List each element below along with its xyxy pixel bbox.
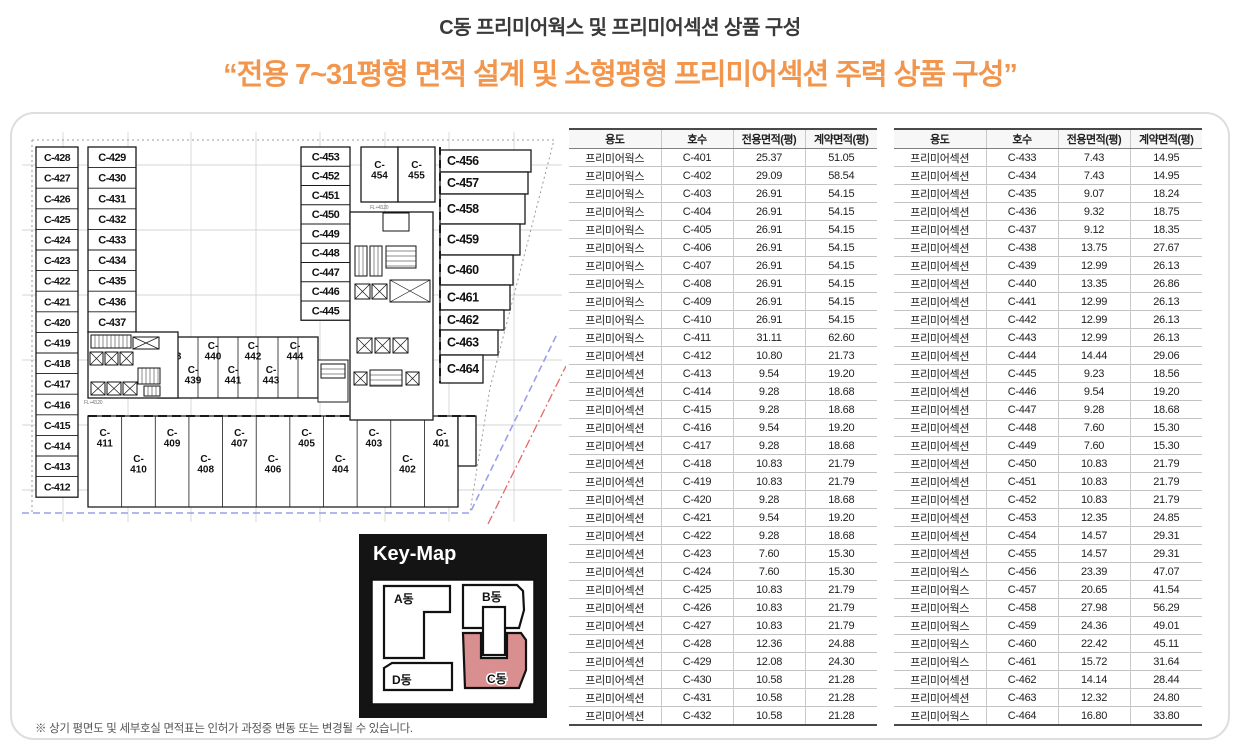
table-cell: C-423: [661, 545, 733, 563]
table-row: 프리미어섹션C-42610.8321.79: [569, 599, 877, 617]
table-cell: C-420: [661, 491, 733, 509]
table-cell: 프리미어섹션: [569, 527, 661, 545]
key-map-title: Key-Map: [359, 534, 547, 566]
table-cell: 프리미어섹션: [894, 689, 986, 707]
unit-label: C-464: [447, 362, 479, 376]
table-cell: 21.79: [805, 617, 877, 635]
table-cell: 54.15: [805, 257, 877, 275]
table-cell: 10.83: [733, 599, 805, 617]
unit-label: C-414: [44, 441, 71, 453]
table-cell: 10.83: [1058, 455, 1130, 473]
table-cell: 21.79: [805, 473, 877, 491]
table-row: 프리미어섹션C-43912.9926.13: [894, 257, 1202, 275]
table-cell: 10.58: [733, 707, 805, 726]
table-row: 프리미어섹션C-44212.9926.13: [894, 311, 1202, 329]
table-cell: 프리미어웍스: [569, 293, 661, 311]
table-cell: 9.28: [733, 401, 805, 419]
table-cell: 7.60: [1058, 437, 1130, 455]
table-cell: C-457: [986, 581, 1058, 599]
unit-label: C-456: [447, 154, 479, 168]
table-cell: 프리미어웍스: [569, 185, 661, 203]
table-cell: C-421: [661, 509, 733, 527]
unit-label: C-446: [312, 286, 340, 298]
table-cell: 프리미어섹션: [569, 437, 661, 455]
table-cell: 14.95: [1130, 167, 1202, 185]
table-cell: 프리미어섹션: [569, 455, 661, 473]
table-header-row: 용도호수전용면적(평)계약면적(평): [894, 129, 1202, 149]
level-annotation: FL +43.20: [84, 400, 103, 406]
table-cell: 프리미어웍스: [894, 707, 986, 726]
table-cell: C-455: [986, 545, 1058, 563]
table-row: 프리미어섹션C-4229.2818.68: [569, 527, 877, 545]
table-cell: C-427: [661, 617, 733, 635]
table-cell: 프리미어웍스: [894, 653, 986, 671]
table-cell: 프리미어섹션: [894, 365, 986, 383]
table-cell: 프리미어섹션: [894, 329, 986, 347]
unit-label: C-420: [44, 317, 71, 329]
column-header: 호수: [986, 129, 1058, 149]
table-cell: 7.43: [1058, 167, 1130, 185]
table-cell: C-409: [661, 293, 733, 311]
unit-label: C-428: [44, 152, 71, 164]
table-cell: 51.05: [805, 149, 877, 167]
table-cell: 27.67: [1130, 239, 1202, 257]
table-cell: 13.75: [1058, 239, 1130, 257]
table-cell: 프리미어섹션: [569, 689, 661, 707]
table-cell: 12.99: [1058, 293, 1130, 311]
building-d-label: D동: [392, 673, 412, 687]
table-cell: C-424: [661, 563, 733, 581]
building-c-label: C동: [487, 672, 507, 686]
table-row: 프리미어웍스C-45623.3947.07: [894, 563, 1202, 581]
table-cell: 24.85: [1130, 509, 1202, 527]
table-cell: C-445: [986, 365, 1058, 383]
table-cell: 프리미어섹션: [894, 185, 986, 203]
table-cell: 19.20: [805, 509, 877, 527]
table-cell: C-448: [986, 419, 1058, 437]
level-annotation: FL +43.20: [370, 205, 389, 211]
table-cell: C-403: [661, 185, 733, 203]
table-cell: 26.91: [733, 257, 805, 275]
unit-label: C-421: [44, 296, 71, 308]
table-cell: C-437: [986, 221, 1058, 239]
table-cell: 26.13: [1130, 257, 1202, 275]
table-cell: 프리미어섹션: [894, 257, 986, 275]
table-cell: C-416: [661, 419, 733, 437]
table-row: 프리미어섹션C-4369.3218.75: [894, 203, 1202, 221]
table-cell: 24.36: [1058, 617, 1130, 635]
table-cell: 49.01: [1130, 617, 1202, 635]
table-row: 프리미어섹션C-45414.5729.31: [894, 527, 1202, 545]
unit-label: C-416: [44, 399, 71, 411]
table-cell: 프리미어섹션: [894, 167, 986, 185]
table-cell: 21.79: [805, 581, 877, 599]
table-cell: 7.60: [733, 545, 805, 563]
table-cell: 9.28: [733, 527, 805, 545]
table-cell: 프리미어섹션: [894, 473, 986, 491]
table-cell: 14.57: [1058, 527, 1130, 545]
unit-table-right: 용도호수전용면적(평)계약면적(평)프리미어섹션C-4337.4314.95프리…: [894, 128, 1202, 726]
building-b-label: B동: [482, 590, 502, 604]
table-row: 프리미어섹션C-4337.4314.95: [894, 149, 1202, 167]
table-cell: 프리미어섹션: [569, 419, 661, 437]
table-row: 프리미어섹션C-45210.8321.79: [894, 491, 1202, 509]
table-cell: 프리미어웍스: [569, 221, 661, 239]
column-header: 전용면적(평): [733, 129, 805, 149]
table-cell: 62.60: [805, 329, 877, 347]
table-cell: 프리미어섹션: [569, 653, 661, 671]
table-cell: 10.83: [733, 455, 805, 473]
table-cell: 프리미어섹션: [569, 563, 661, 581]
table-cell: C-450: [986, 455, 1058, 473]
table-row: 프리미어웍스C-40526.9154.15: [569, 221, 877, 239]
table-cell: 프리미어웍스: [894, 617, 986, 635]
table-row: 프리미어섹션C-43813.7527.67: [894, 239, 1202, 257]
table-cell: 10.83: [733, 617, 805, 635]
table-cell: 54.15: [805, 311, 877, 329]
table-cell: 23.39: [1058, 563, 1130, 581]
key-map-diagram: A동 B동 D동 C동: [370, 578, 536, 706]
table-cell: 27.98: [1058, 599, 1130, 617]
table-cell: 14.95: [1130, 149, 1202, 167]
column-header: 계약면적(평): [1130, 129, 1202, 149]
table-cell: 프리미어섹션: [569, 509, 661, 527]
unit-label: C-418: [44, 358, 71, 370]
table-cell: 15.30: [1130, 419, 1202, 437]
table-cell: C-444: [986, 347, 1058, 365]
table-cell: 26.13: [1130, 329, 1202, 347]
table-cell: 54.15: [805, 221, 877, 239]
table-row: 프리미어섹션C-4479.2818.68: [894, 401, 1202, 419]
table-cell: C-407: [661, 257, 733, 275]
table-cell: 19.20: [1130, 383, 1202, 401]
table-cell: 10.58: [733, 689, 805, 707]
table-cell: C-414: [661, 383, 733, 401]
unit-label: C-447: [312, 267, 340, 279]
table-cell: 21.73: [805, 347, 877, 365]
table-cell: 26.91: [733, 203, 805, 221]
table-cell: 29.06: [1130, 347, 1202, 365]
table-row: 프리미어섹션C-4209.2818.68: [569, 491, 877, 509]
table-cell: 프리미어섹션: [569, 581, 661, 599]
page-subtitle: “전용 7~31평형 면적 설계 및 소형평형 프리미어섹션 주력 상품 구성”: [0, 51, 1240, 93]
table-cell: C-438: [986, 239, 1058, 257]
table-cell: 14.44: [1058, 347, 1130, 365]
unit-label: C-458: [447, 202, 479, 216]
table-row: 프리미어섹션C-46214.1428.44: [894, 671, 1202, 689]
table-row: 프리미어웍스C-40125.3751.05: [569, 149, 877, 167]
table-cell: 21.79: [1130, 455, 1202, 473]
table-cell: 31.64: [1130, 653, 1202, 671]
table-cell: 7.60: [1058, 419, 1130, 437]
unit-label: C-450: [312, 209, 340, 221]
table-cell: 10.83: [1058, 491, 1130, 509]
table-row: 프리미어섹션C-4219.5419.20: [569, 509, 877, 527]
unit-label: C-424: [44, 235, 71, 247]
unit-label: C-435: [98, 276, 126, 288]
table-cell: 12.32: [1058, 689, 1130, 707]
table-row: 프리미어섹션C-4247.6015.30: [569, 563, 877, 581]
table-cell: 9.28: [1058, 401, 1130, 419]
table-cell: 프리미어섹션: [569, 545, 661, 563]
table-cell: 54.15: [805, 185, 877, 203]
table-cell: C-425: [661, 581, 733, 599]
table-cell: 프리미어웍스: [569, 257, 661, 275]
table-row: 프리미어섹션C-44414.4429.06: [894, 347, 1202, 365]
table-cell: 9.32: [1058, 203, 1130, 221]
table-cell: 21.28: [805, 671, 877, 689]
table-cell: 9.23: [1058, 365, 1130, 383]
table-cell: 26.91: [733, 185, 805, 203]
table-cell: 12.36: [733, 635, 805, 653]
table-cell: C-419: [661, 473, 733, 491]
unit-label: C-412: [44, 482, 71, 494]
column-header: 전용면적(평): [1058, 129, 1130, 149]
table-cell: 프리미어섹션: [894, 455, 986, 473]
table-cell: C-447: [986, 401, 1058, 419]
table-cell: 프리미어섹션: [569, 347, 661, 365]
table-cell: 프리미어섹션: [894, 401, 986, 419]
table-cell: C-454: [986, 527, 1058, 545]
table-cell: 54.15: [805, 239, 877, 257]
table-cell: 프리미어섹션: [894, 221, 986, 239]
table-cell: 프리미어섹션: [894, 149, 986, 167]
table-row: 프리미어섹션C-41910.8321.79: [569, 473, 877, 491]
table-row: 프리미어섹션C-42812.3624.88: [569, 635, 877, 653]
table-cell: C-417: [661, 437, 733, 455]
key-map: Key-Map A동 B동 D동 C동: [359, 534, 547, 718]
unit-label: C-445: [312, 305, 340, 317]
table-cell: 9.54: [1058, 383, 1130, 401]
table-cell: 54.15: [805, 203, 877, 221]
table-cell: 프리미어섹션: [569, 635, 661, 653]
table-cell: 9.28: [733, 437, 805, 455]
table-row: 프리미어섹션C-45514.5729.31: [894, 545, 1202, 563]
table-cell: 20.65: [1058, 581, 1130, 599]
column-header: 용도: [569, 129, 661, 149]
table-cell: 26.13: [1130, 311, 1202, 329]
table-cell: C-404: [661, 203, 733, 221]
table-cell: 7.60: [733, 563, 805, 581]
unit-label: C-432: [98, 214, 126, 226]
table-row: 프리미어웍스C-40229.0958.54: [569, 167, 877, 185]
table-cell: 15.30: [805, 545, 877, 563]
table-row: 프리미어섹션C-4169.5419.20: [569, 419, 877, 437]
table-cell: 15.72: [1058, 653, 1130, 671]
table-row: 프리미어섹션C-45312.3524.85: [894, 509, 1202, 527]
unit-label: C-437: [98, 317, 126, 329]
table-cell: C-436: [986, 203, 1058, 221]
table-cell: 12.35: [1058, 509, 1130, 527]
table-row: 프리미어섹션C-45010.8321.79: [894, 455, 1202, 473]
unit-label: C-449: [312, 228, 340, 240]
table-cell: C-459: [986, 617, 1058, 635]
table-row: 프리미어섹션C-44312.9926.13: [894, 329, 1202, 347]
table-cell: 프리미어섹션: [894, 491, 986, 509]
table-cell: 45.11: [1130, 635, 1202, 653]
road-line-red: [488, 366, 566, 524]
table-cell: 9.28: [733, 491, 805, 509]
table-row: 프리미어섹션C-4179.2818.68: [569, 437, 877, 455]
table-row: 프리미어웍스C-40326.9154.15: [569, 185, 877, 203]
table-row: 프리미어웍스C-45924.3649.01: [894, 617, 1202, 635]
table-cell: 프리미어섹션: [894, 419, 986, 437]
table-cell: 29.31: [1130, 527, 1202, 545]
unit-label: C-433: [98, 235, 126, 247]
table-cell: 18.68: [1130, 401, 1202, 419]
table-cell: C-428: [661, 635, 733, 653]
table-cell: 프리미어섹션: [894, 275, 986, 293]
table-cell: C-413: [661, 365, 733, 383]
table-row: 프리미어웍스C-45720.6541.54: [894, 581, 1202, 599]
table-cell: 13.35: [1058, 275, 1130, 293]
table-cell: 28.44: [1130, 671, 1202, 689]
table-cell: 14.14: [1058, 671, 1130, 689]
table-cell: C-408: [661, 275, 733, 293]
table-cell: C-461: [986, 653, 1058, 671]
table-cell: 14.57: [1058, 545, 1130, 563]
unit-label: C-460: [447, 263, 479, 277]
unit-label: C-436: [98, 296, 126, 308]
unit-label: C-417: [44, 379, 71, 391]
table-cell: 18.68: [805, 401, 877, 419]
table-cell: C-430: [661, 671, 733, 689]
table-cell: 프리미어섹션: [894, 239, 986, 257]
table-cell: 26.91: [733, 221, 805, 239]
table-cell: 프리미어웍스: [894, 599, 986, 617]
table-cell: 18.68: [805, 527, 877, 545]
table-row: 프리미어섹션C-43110.5821.28: [569, 689, 877, 707]
table-cell: 프리미어웍스: [569, 329, 661, 347]
table-cell: 프리미어섹션: [569, 617, 661, 635]
unit-label: C-429: [98, 152, 126, 164]
table-row: 프리미어섹션C-42510.8321.79: [569, 581, 877, 599]
table-cell: 프리미어섹션: [569, 707, 661, 726]
table-row: 프리미어웍스C-46416.8033.80: [894, 707, 1202, 726]
table-cell: 10.80: [733, 347, 805, 365]
table-cell: 16.80: [1058, 707, 1130, 726]
table-cell: 12.99: [1058, 257, 1130, 275]
table-cell: 프리미어웍스: [569, 149, 661, 167]
table-cell: 26.91: [733, 239, 805, 257]
table-cell: 56.29: [1130, 599, 1202, 617]
unit-label: C-453: [312, 151, 340, 163]
table-cell: 18.56: [1130, 365, 1202, 383]
unit-label: C-427: [44, 173, 71, 185]
table-cell: 21.79: [1130, 491, 1202, 509]
table-cell: 10.58: [733, 671, 805, 689]
unit-label: C-448: [312, 248, 340, 260]
table-cell: 프리미어섹션: [894, 383, 986, 401]
table-cell: C-433: [986, 149, 1058, 167]
table-cell: 10.83: [1058, 473, 1130, 491]
table-cell: C-456: [986, 563, 1058, 581]
table-cell: C-410: [661, 311, 733, 329]
unit-label: C-452: [312, 171, 340, 183]
table-cell: 19.20: [805, 419, 877, 437]
table-cell: 47.07: [1130, 563, 1202, 581]
table-cell: 프리미어웍스: [569, 239, 661, 257]
unit-label: C-461: [447, 291, 479, 305]
table-row: 프리미어섹션C-4497.6015.30: [894, 437, 1202, 455]
table-cell: C-435: [986, 185, 1058, 203]
table-cell: 9.54: [733, 419, 805, 437]
table-cell: 프리미어섹션: [894, 311, 986, 329]
table-cell: 15.30: [1130, 437, 1202, 455]
table-cell: C-446: [986, 383, 1058, 401]
table-row: 프리미어웍스C-40726.9154.15: [569, 257, 877, 275]
table-cell: 프리미어웍스: [569, 167, 661, 185]
table-cell: 프리미어섹션: [569, 491, 661, 509]
table-cell: 41.54: [1130, 581, 1202, 599]
table-row: 프리미어웍스C-45827.9856.29: [894, 599, 1202, 617]
table-row: 프리미어섹션C-46312.3224.80: [894, 689, 1202, 707]
table-row: 프리미어섹션C-41210.8021.73: [569, 347, 877, 365]
table-cell: C-453: [986, 509, 1058, 527]
table-cell: 54.15: [805, 293, 877, 311]
unit-label: C-462: [447, 313, 479, 327]
unit-label: C-451: [312, 190, 340, 202]
table-cell: C-415: [661, 401, 733, 419]
table-cell: 프리미어섹션: [894, 671, 986, 689]
table-cell: 31.11: [733, 329, 805, 347]
content-panel: C-428C-427C-426C-425C-424C-423C-422C-421…: [10, 112, 1230, 740]
table-cell: C-458: [986, 599, 1058, 617]
table-row: 프리미어섹션C-43010.5821.28: [569, 671, 877, 689]
table-cell: C-432: [661, 707, 733, 726]
table-cell: C-463: [986, 689, 1058, 707]
table-cell: 프리미어섹션: [569, 599, 661, 617]
table-cell: 12.08: [733, 653, 805, 671]
table-cell: 24.30: [805, 653, 877, 671]
table-row: 프리미어섹션C-4487.6015.30: [894, 419, 1202, 437]
table-cell: 21.79: [805, 599, 877, 617]
floor-plan: C-428C-427C-426C-425C-424C-423C-422C-421…: [18, 120, 566, 532]
table-row: 프리미어섹션C-4459.2318.56: [894, 365, 1202, 383]
table-cell: C-439: [986, 257, 1058, 275]
table-cell: 프리미어섹션: [894, 545, 986, 563]
table-cell: 18.35: [1130, 221, 1202, 239]
table-cell: 18.68: [805, 437, 877, 455]
table-cell: 21.28: [805, 689, 877, 707]
table-cell: C-412: [661, 347, 733, 365]
table-cell: 18.24: [1130, 185, 1202, 203]
table-cell: 15.30: [805, 563, 877, 581]
table-row: 프리미어섹션C-44013.3526.86: [894, 275, 1202, 293]
unit-label: C-426: [44, 193, 71, 205]
table-row: 프리미어섹션C-42912.0824.30: [569, 653, 877, 671]
table-row: 프리미어웍스C-40626.9154.15: [569, 239, 877, 257]
table-cell: C-462: [986, 671, 1058, 689]
table-cell: C-431: [661, 689, 733, 707]
table-cell: 프리미어섹션: [894, 293, 986, 311]
table-cell: 21.28: [805, 707, 877, 726]
table-cell: 프리미어섹션: [894, 509, 986, 527]
table-cell: C-442: [986, 311, 1058, 329]
table-cell: C-405: [661, 221, 733, 239]
unit-label: C-423: [44, 255, 71, 267]
table-cell: C-418: [661, 455, 733, 473]
table-cell: C-449: [986, 437, 1058, 455]
table-cell: 24.88: [805, 635, 877, 653]
unit-label: C-419: [44, 338, 71, 350]
table-cell: 프리미어섹션: [894, 203, 986, 221]
table-cell: C-426: [661, 599, 733, 617]
unit-label: C-430: [98, 173, 126, 185]
table-cell: C-406: [661, 239, 733, 257]
table-cell: 프리미어섹션: [569, 671, 661, 689]
unit-label: C-459: [447, 233, 479, 247]
